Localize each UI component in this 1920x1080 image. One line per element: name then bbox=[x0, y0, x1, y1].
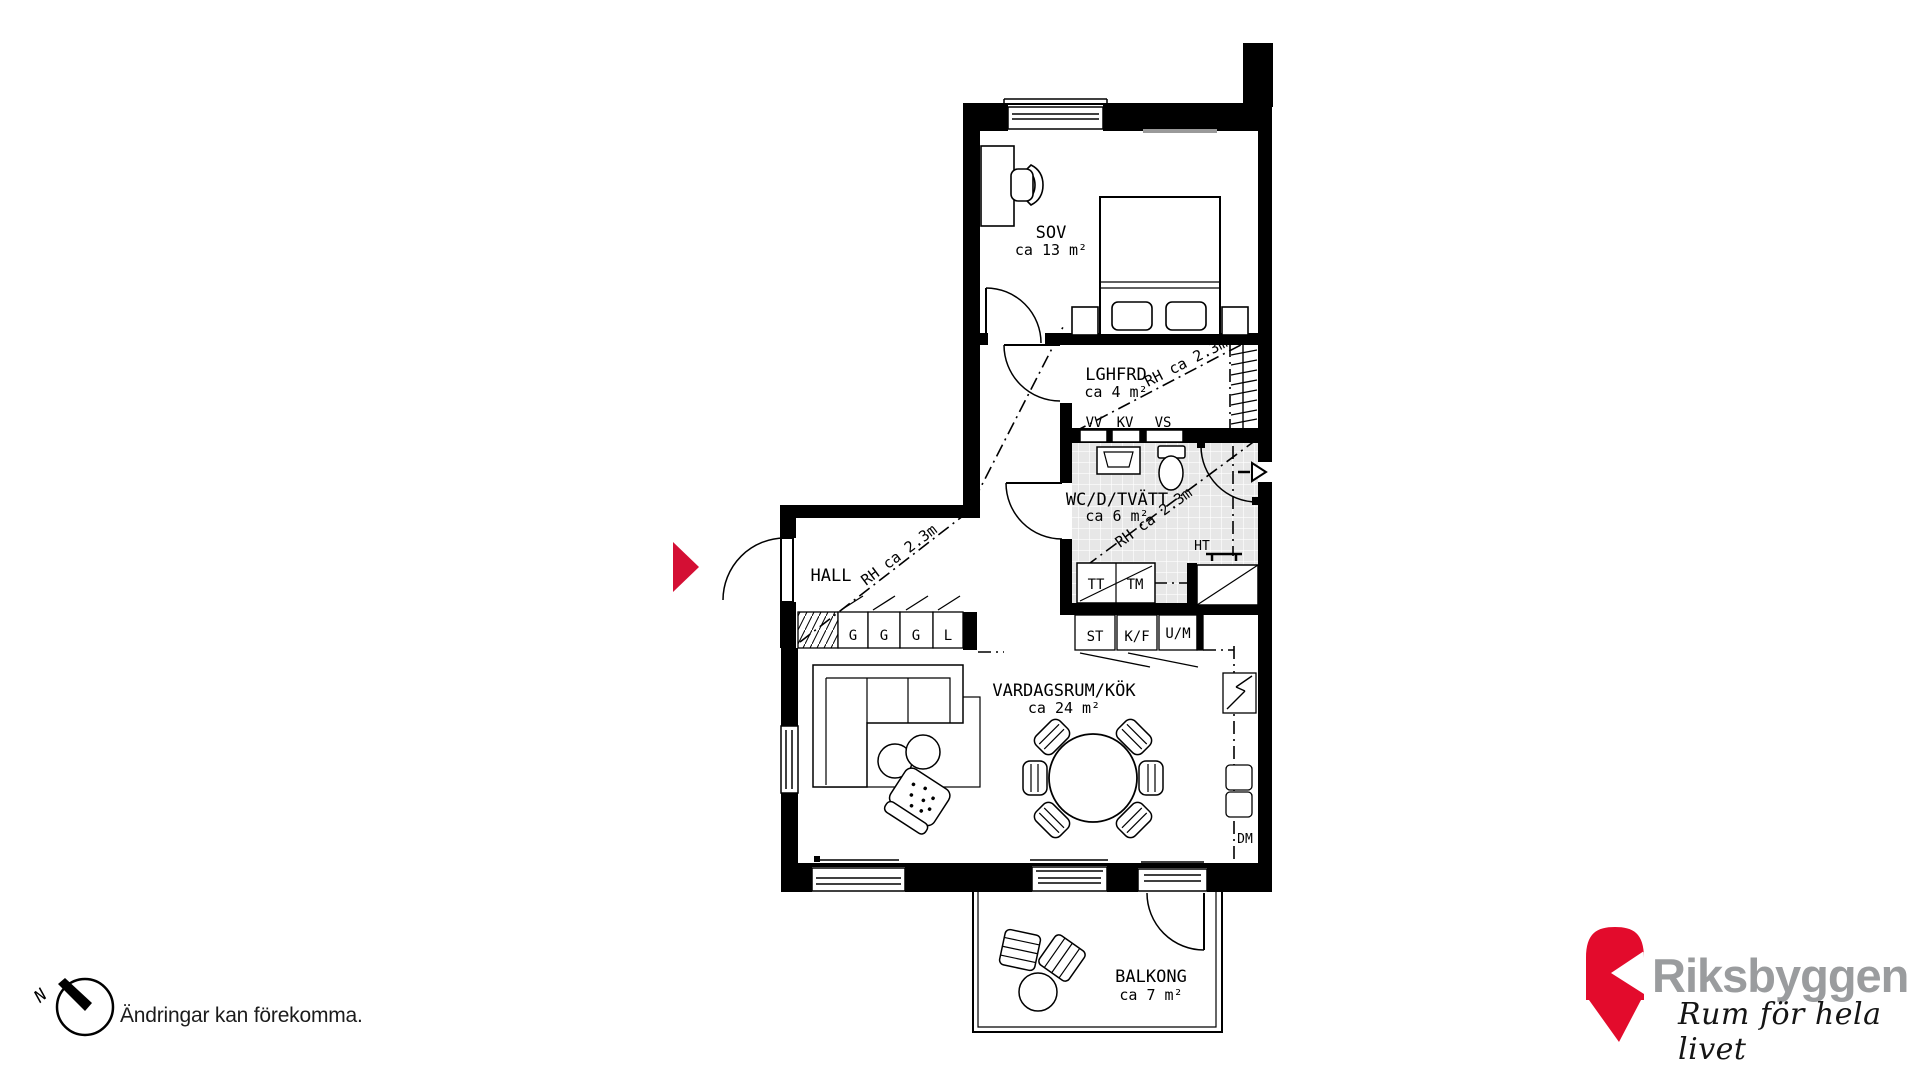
bedroom-label: SOV bbox=[1036, 223, 1067, 243]
living-area: ca 24 m² bbox=[1028, 699, 1100, 717]
disclaimer-text: Ändringar kan förekomma. bbox=[120, 1004, 363, 1028]
entrance-marker bbox=[673, 542, 699, 592]
hall-label: HALL bbox=[811, 566, 852, 586]
dishwasher-label: DM bbox=[1237, 832, 1253, 847]
towel-rail-label: HT bbox=[1194, 539, 1210, 554]
storage-label: LGHFRD bbox=[1085, 365, 1146, 385]
floorplan-page: SOV ca 13 m² LGHFRD ca 4 m² WC/D/TVÄTT c… bbox=[0, 0, 1920, 1080]
oven-micro-label: U/M bbox=[1165, 626, 1190, 642]
compass-north-label: N bbox=[30, 985, 52, 1008]
closet-1-label: G bbox=[849, 628, 857, 644]
storage-area: ca 4 m² bbox=[1084, 383, 1147, 401]
ceiling-note-hall: RH ca 2.3m bbox=[858, 520, 941, 589]
living-label: VARDAGSRUM/KÖK bbox=[992, 679, 1136, 701]
cleaning-cabinet-label: ST bbox=[1087, 629, 1104, 645]
dryer-label: TT bbox=[1088, 577, 1105, 593]
balcony bbox=[973, 892, 1222, 1032]
closet-3-label: G bbox=[912, 628, 920, 644]
floor-plan-drawing: SOV ca 13 m² LGHFRD ca 4 m² WC/D/TVÄTT c… bbox=[0, 0, 1920, 1080]
balcony-label: BALKONG bbox=[1115, 967, 1187, 987]
closet-2-label: G bbox=[880, 628, 888, 644]
cold-water-label: KV bbox=[1117, 415, 1134, 431]
brand-tagline: Rum för hela livet bbox=[1678, 997, 1920, 1067]
heating-label: VS bbox=[1155, 415, 1172, 431]
riksbyggen-logo-icon bbox=[1586, 927, 1644, 1042]
bedroom-area: ca 13 m² bbox=[1015, 241, 1087, 259]
balcony-area: ca 7 m² bbox=[1119, 986, 1182, 1004]
storage-shelves bbox=[1231, 344, 1257, 428]
compass-icon: N bbox=[30, 978, 113, 1035]
brand-name: Riksbyggen bbox=[1652, 948, 1908, 1003]
closet-4-label: L bbox=[944, 628, 952, 644]
hot-water-label: VV bbox=[1086, 415, 1103, 431]
washer-label: TM bbox=[1127, 577, 1144, 593]
fridge-freezer-label: K/F bbox=[1124, 629, 1149, 645]
